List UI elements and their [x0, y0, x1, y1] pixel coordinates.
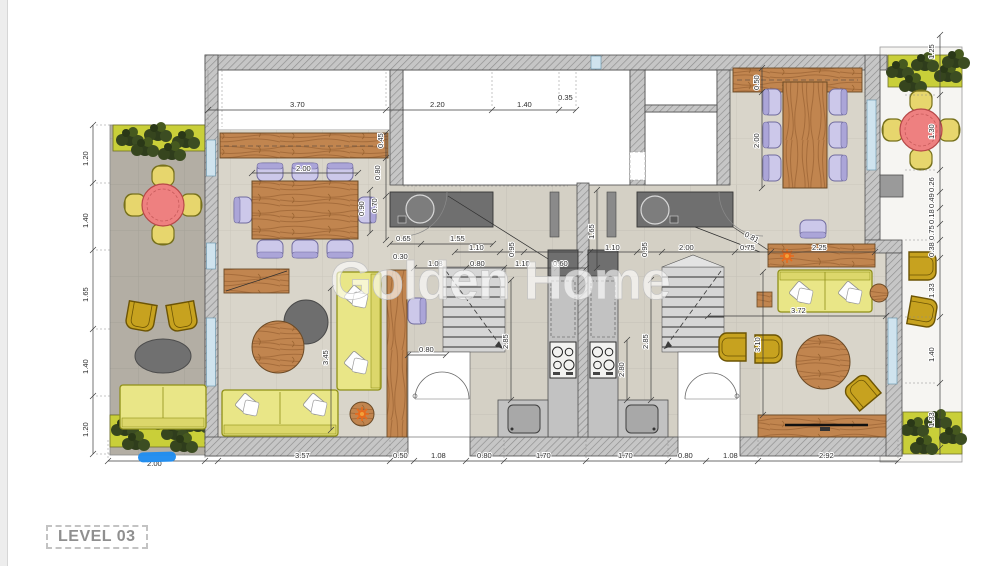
round-sink-icon	[641, 196, 669, 224]
side-table-icon	[757, 292, 772, 307]
viewer-edge-strip	[0, 0, 8, 566]
dim-label: 0.26	[927, 177, 936, 192]
coffee-table-icon	[252, 321, 304, 373]
window-right-upper	[867, 100, 876, 170]
dim-label: 0.35	[558, 93, 573, 102]
sofa-icon	[222, 390, 338, 436]
dim-label: 0.80	[678, 451, 693, 460]
dim-label: 3.70	[290, 100, 305, 109]
desk-chair-icon	[800, 220, 826, 238]
dim-label: 2.20	[430, 100, 445, 109]
sideboard-icon	[220, 133, 388, 158]
dim-label: 0.90	[357, 201, 366, 216]
dim-label: 2.80	[617, 362, 626, 377]
dining-table-icon	[252, 181, 358, 239]
dim-label: 1.33	[927, 283, 936, 298]
dim-label: 0.38	[927, 242, 936, 257]
dim-label: 0.18	[927, 209, 936, 224]
tv-console-icon	[758, 415, 886, 437]
dining-table-icon	[783, 82, 827, 188]
balcony-sofa-icon	[120, 385, 206, 429]
dim-label: 0.80	[373, 165, 382, 180]
dim-label: 2.92	[819, 451, 834, 460]
dim-label: 0.50	[393, 451, 408, 460]
dim-label: 0.75	[740, 243, 755, 252]
dim-label: 0.80	[477, 451, 492, 460]
balcony-door-left	[207, 318, 216, 386]
wall-shaft-right	[717, 70, 730, 185]
dim-label: 1.40	[81, 359, 90, 374]
dim-label: 1.65	[81, 287, 90, 302]
dim-label: 2.25	[812, 243, 827, 252]
door-leaf-right-icon	[607, 192, 616, 237]
lounge-chair-icon	[125, 301, 157, 332]
dim-label: 2.00	[679, 243, 694, 252]
window-top	[591, 56, 601, 69]
dim-label: 1.65	[587, 224, 596, 239]
dim-label: 1.08	[723, 451, 738, 460]
coffee-table-icon	[796, 335, 850, 389]
dim-label: 1.70	[618, 451, 633, 460]
dim-label: 3.10	[753, 337, 762, 352]
door-leaf-left-icon	[550, 192, 559, 237]
dim-label: 0.75	[927, 225, 936, 240]
oval-table-icon	[135, 339, 191, 373]
floorplan-canvas[interactable]: 3.70 2.20 1.40 0.35 2.00 3.57 0.50 1.08 …	[0, 0, 1000, 566]
media-console-icon	[224, 269, 289, 293]
dim-label: 1.20	[81, 151, 90, 166]
dim-label: 1.33	[927, 412, 936, 427]
outdoor-table-icon	[142, 184, 184, 226]
outdoor-chair-icon	[152, 165, 174, 186]
dim-label: 2.00	[752, 133, 761, 148]
dim-label: 2.00	[296, 164, 311, 173]
outdoor-chair-icon	[910, 90, 932, 111]
dim-label: 0.49	[927, 193, 936, 208]
dim-label: 2.85	[501, 334, 510, 349]
dim-label: 1.30	[927, 124, 936, 139]
opening-shaft-door	[630, 152, 645, 180]
dim-label: 1.40	[517, 100, 532, 109]
dim-label: 0.65	[396, 234, 411, 243]
window-left-1	[207, 140, 216, 176]
desk-chair-icon	[719, 333, 746, 361]
window-right-lower	[888, 318, 897, 384]
dim-label: 3.45	[321, 350, 330, 365]
white-room-center	[403, 70, 630, 185]
dim-label: 0.80	[419, 345, 434, 354]
floorplan-viewer: 3.70 2.20 1.40 0.35 2.00 3.57 0.50 1.08 …	[0, 0, 1000, 566]
dim-label: 2.85	[641, 334, 650, 349]
dim-label: 1.25	[927, 44, 936, 59]
wall-whiteroom-left	[390, 70, 403, 185]
dim-label: 3.57	[295, 451, 310, 460]
plant-table-icon	[350, 402, 374, 426]
dining-chair-icon	[763, 89, 781, 115]
window-left-2	[207, 243, 216, 269]
blue-marker-annotation	[138, 452, 176, 463]
white-room-shaft-a	[645, 70, 717, 105]
dim-left: 1.20 1.40 1.65 1.40 1.20	[81, 122, 96, 457]
stove-icon	[550, 342, 576, 378]
round-sink-icon	[406, 195, 434, 223]
dim-label: 1.40	[927, 347, 936, 362]
dim-label: 0.45	[376, 133, 385, 148]
stove-icon	[590, 342, 616, 378]
dim-label: 1.40	[81, 213, 90, 228]
white-room-shaft-b	[645, 112, 717, 185]
dining-chair-icon	[257, 163, 283, 181]
dim-label: 1.08	[431, 451, 446, 460]
column-right-balcony	[880, 175, 903, 197]
dim-label: 0.70	[370, 198, 379, 213]
wall-shaft-divider	[645, 105, 717, 112]
dim-label: 1.55	[450, 234, 465, 243]
watermark-text: Golden Home	[330, 251, 670, 311]
dim-label: 1.20	[81, 422, 90, 437]
round-side-table-icon	[870, 284, 888, 302]
level-label: LEVEL 03	[46, 525, 148, 549]
dim-label: 3.72	[791, 306, 806, 315]
wall-bottom-b	[470, 437, 678, 456]
dim-label: 0.50	[752, 75, 761, 90]
dim-label: 1.70	[536, 451, 551, 460]
